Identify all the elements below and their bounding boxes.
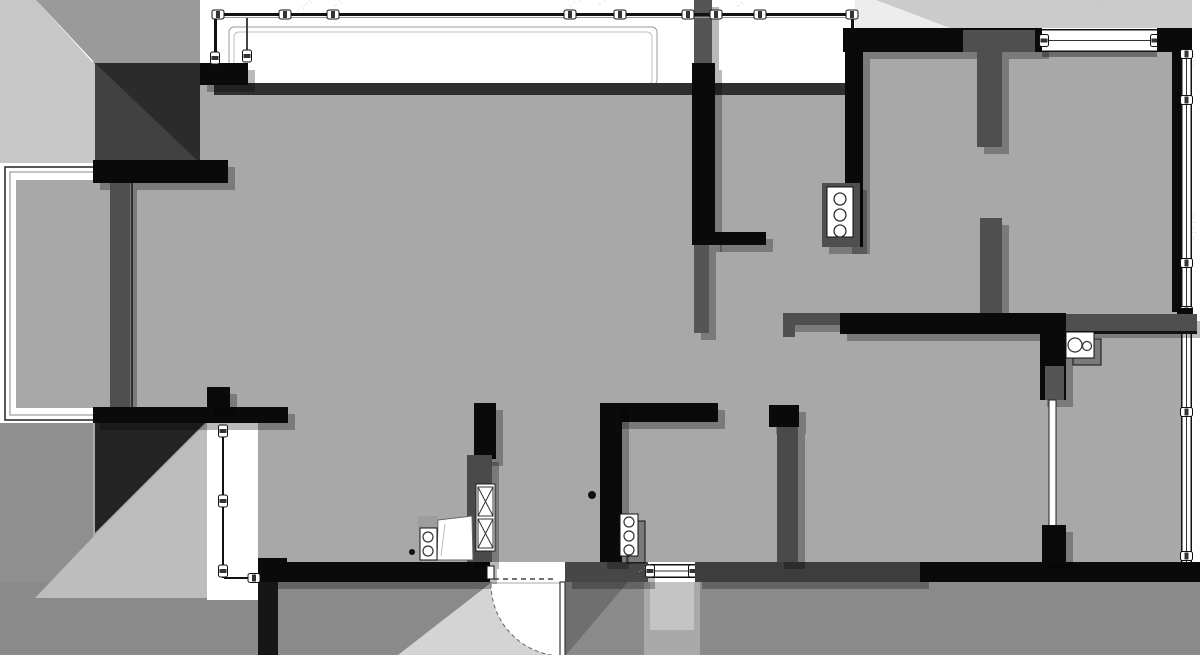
wall-kitchen-cap [474,403,496,459]
glass-partition [1049,400,1056,527]
wall-bottom-mid [565,562,648,582]
railing-post [618,11,622,18]
window-right-post [1185,553,1189,560]
railing-post [850,11,854,18]
right-margin [1192,0,1200,562]
wall-bedroom-divider-stub [980,218,1002,313]
window-right-post [1185,260,1189,267]
switch-knob [624,545,634,555]
railing-post [216,11,220,18]
wall-stub-left [207,387,230,408]
door-hinge-post [487,566,494,579]
stove-burner [834,209,846,221]
window-right-post [1185,97,1189,104]
wall-hook-drop [783,313,795,337]
dimension-mark: ·· : ·· : ··· [1190,213,1198,240]
window-light-core [650,582,694,630]
wall-center-stub [713,232,766,245]
balcony-threshold [214,83,845,95]
railing-post [283,11,287,18]
floorplan-canvas: ·· : ·· : ····· : ·· : ····· : ·· : ····… [0,0,1200,655]
small-dot [409,549,415,555]
wall-bath-top [1066,314,1197,331]
wall-right-inner [1172,52,1181,312]
sink-basin-small [1083,342,1092,351]
t-column-bar [963,30,1035,52]
door-stop-dot [588,491,596,499]
switch-knob [423,546,433,556]
counter-fixture [437,516,473,560]
railing-post [686,11,690,18]
railing-post [758,11,762,18]
floorplan: ·· : ·· : ····· : ·· : ····· : ·· : ····… [0,0,1200,655]
railing-post [331,11,335,18]
wall-bath-inset [1045,366,1064,400]
railing-post [220,569,227,573]
railing-post [252,575,256,582]
wall-left-lower [93,407,288,423]
door-leaf [560,582,565,655]
switch-knob [423,532,433,542]
balcony-mullion [110,183,130,407]
wall-center-vertical [692,63,715,245]
wall-bedroom-cap [769,405,799,427]
counter-step [418,516,437,528]
appliance [476,484,495,551]
railing-post [220,499,227,503]
window-top-right-post [1041,39,1048,43]
wall-left-upper [93,160,228,183]
wall-mid-right [840,313,1066,334]
railing-post [220,429,227,433]
sink-basin [1068,338,1082,352]
railing-post [714,11,718,18]
wall-bottom-left-drop [258,582,278,655]
t-column-stem [977,52,1002,147]
railing-post [244,54,251,58]
switch-knob [624,517,634,527]
stove-burner [834,225,846,237]
wall-bedroom-right [777,427,798,562]
wall-bottom-mid-right [695,562,922,582]
wall-corridor-left [600,403,622,562]
wall-center-thin [694,245,709,333]
window-right-post [1185,51,1189,58]
window-shadow [1042,52,1157,57]
switch-knob [624,531,634,541]
railing-post [212,56,219,60]
wall-bottom-left [258,562,490,582]
stove-burner [834,193,846,205]
wall-bath-block [1042,525,1066,562]
dimension-mark: ·· : ··· [1190,51,1198,68]
wall-top-left-block [200,63,248,85]
balcony-left-floor [16,180,108,408]
wall-balcony-divider [694,0,712,63]
window-right-post [1185,409,1189,416]
